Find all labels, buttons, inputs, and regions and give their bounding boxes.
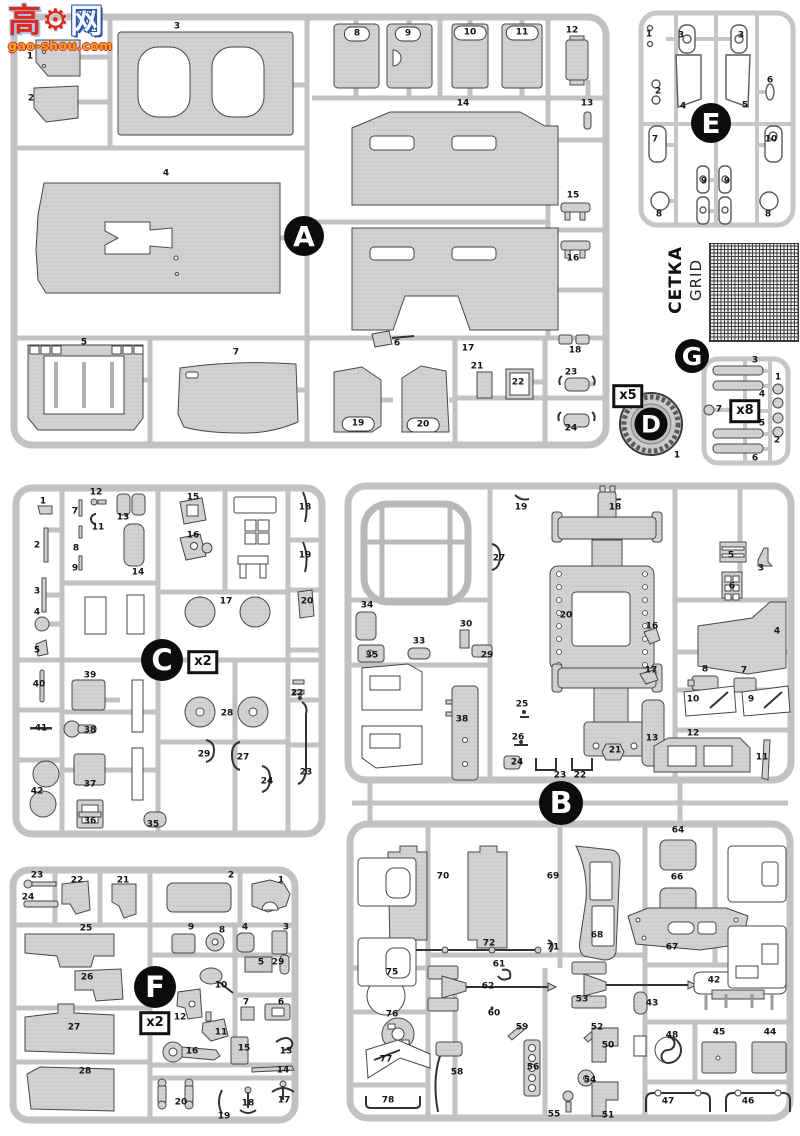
part-label-G-2: 2 bbox=[774, 437, 780, 446]
part-label-C-12: 12 bbox=[90, 489, 103, 498]
part-label-B-54: 54 bbox=[584, 1077, 597, 1086]
sprue-b-bottom-graphic bbox=[350, 824, 790, 1118]
part-label-F-2: 2 bbox=[228, 872, 234, 881]
part-label-B-44: 44 bbox=[764, 1029, 777, 1038]
part-label-B-72: 72 bbox=[483, 940, 496, 949]
part-label-A-6: 6 bbox=[394, 340, 400, 349]
part-label-G-7: 7 bbox=[716, 406, 722, 415]
part-label-B-55: 55 bbox=[548, 1111, 561, 1120]
part-label-F-21: 21 bbox=[117, 877, 130, 886]
part-label-G-3: 3 bbox=[752, 357, 758, 366]
part-label-B-62: 62 bbox=[482, 983, 495, 992]
sprue-f-multiplier: x2 bbox=[139, 1011, 170, 1035]
part-label-F-15: 15 bbox=[238, 1045, 251, 1054]
part-label-B-35: 35 bbox=[366, 652, 379, 661]
part-label-F-20: 20 bbox=[175, 1099, 188, 1108]
part-label-B-27: 27 bbox=[493, 555, 506, 564]
part-label-E-3: 3 bbox=[678, 32, 684, 41]
part-label-A-12: 12 bbox=[566, 27, 579, 36]
part-label-C-35: 35 bbox=[147, 821, 160, 830]
part-label-F-23: 23 bbox=[31, 872, 44, 881]
part-label-B-52: 52 bbox=[591, 1024, 604, 1033]
part-label-F-17: 17 bbox=[278, 1097, 291, 1106]
part-label-C-15: 15 bbox=[187, 494, 200, 503]
part-label-C-40: 40 bbox=[33, 681, 46, 690]
part-label-F-25: 25 bbox=[80, 925, 93, 934]
part-label-A-2: 2 bbox=[28, 95, 34, 104]
part-label-G-4: 4 bbox=[759, 391, 765, 400]
part-label-F-28: 28 bbox=[79, 1068, 92, 1077]
part-label-C-16: 16 bbox=[187, 532, 200, 541]
part-label-C-13: 13 bbox=[117, 514, 130, 523]
part-label-A-23: 23 bbox=[565, 369, 578, 378]
part-label-F-6: 6 bbox=[278, 999, 284, 1008]
part-label-A-11: 11 bbox=[506, 26, 539, 41]
sprue-c-badge: C bbox=[141, 639, 183, 681]
sprue-a-badge: A bbox=[284, 216, 324, 256]
part-label-E-6: 6 bbox=[767, 77, 773, 86]
part-label-E-8: 8 bbox=[765, 211, 771, 220]
part-label-C-39: 39 bbox=[84, 672, 97, 681]
part-label-F-24: 24 bbox=[22, 894, 35, 903]
sprue-f-badge: F bbox=[134, 966, 176, 1008]
part-label-B-56: 56 bbox=[527, 1064, 540, 1073]
part-label-F-3: 3 bbox=[283, 924, 289, 933]
part-label-B-34: 34 bbox=[361, 602, 374, 611]
part-label-C-11: 11 bbox=[92, 524, 105, 533]
part-label-B-48: 48 bbox=[666, 1032, 679, 1041]
part-label-C-42: 42 bbox=[31, 788, 44, 797]
part-label-F-18: 18 bbox=[242, 1100, 255, 1109]
logo-char-right: 网 bbox=[70, 4, 103, 37]
part-label-C-19: 19 bbox=[299, 552, 312, 561]
part-label-F-19: 19 bbox=[218, 1113, 231, 1122]
part-label-F-27: 27 bbox=[68, 1024, 81, 1033]
part-label-C-41: 41 bbox=[35, 725, 48, 734]
part-label-A-15: 15 bbox=[567, 192, 580, 201]
part-label-B-60: 60 bbox=[488, 1010, 501, 1019]
part-label-A-1: 1 bbox=[27, 53, 33, 62]
part-label-B-5: 5 bbox=[728, 552, 734, 561]
part-label-B-12: 12 bbox=[687, 730, 700, 739]
part-label-C-23: 23 bbox=[300, 769, 313, 778]
part-label-A-5: 5 bbox=[81, 339, 87, 348]
part-label-C-1: 1 bbox=[40, 498, 46, 507]
part-label-A-8: 8 bbox=[344, 27, 370, 42]
sprue-g-badge: G bbox=[675, 339, 709, 373]
part-label-C-29: 29 bbox=[198, 751, 211, 760]
part-label-B-43: 43 bbox=[646, 1000, 659, 1009]
part-label-B-51: 51 bbox=[602, 1112, 615, 1121]
part-label-B-13: 13 bbox=[646, 735, 659, 744]
part-label-A-10: 10 bbox=[454, 26, 487, 41]
part-label-B-69: 69 bbox=[547, 873, 560, 882]
part-label-A-24: 24 bbox=[565, 425, 578, 434]
part-label-B-67: 67 bbox=[666, 944, 679, 953]
part-label-G-5: 5 bbox=[759, 420, 765, 429]
part-label-B-4: 4 bbox=[774, 628, 780, 637]
part-label-B-33: 33 bbox=[413, 638, 426, 647]
part-label-C-36: 36 bbox=[84, 818, 97, 827]
part-label-C-8: 8 bbox=[73, 545, 79, 554]
part-label-B-9: 9 bbox=[748, 696, 754, 705]
part-label-C-3: 3 bbox=[34, 588, 40, 597]
instruction-sheet-page: СЕТКА GRID A B C D E F G x5 x8 x2 x2 高 ⚙… bbox=[0, 0, 800, 1136]
part-label-C-17: 17 bbox=[220, 598, 233, 607]
part-label-B-25: 25 bbox=[516, 701, 529, 710]
part-label-F-29: 29 bbox=[272, 959, 285, 968]
part-label-C-20: 20 bbox=[301, 598, 314, 607]
part-label-B-46: 46 bbox=[742, 1098, 755, 1107]
watermark-logo: 高 ⚙ 网 gao-shou.com bbox=[8, 4, 118, 53]
part-label-F-9: 9 bbox=[188, 924, 194, 933]
sprue-d-multiplier: x5 bbox=[612, 384, 643, 408]
part-label-A-9: 9 bbox=[395, 27, 421, 42]
part-label-B-24: 24 bbox=[511, 759, 524, 768]
sprue-diagram bbox=[0, 0, 800, 1136]
sprue-b-badge: B bbox=[539, 781, 583, 825]
part-label-F-13: 13 bbox=[280, 1048, 293, 1057]
mesh-grid-part bbox=[709, 243, 799, 342]
part-label-F-16: 16 bbox=[186, 1048, 199, 1057]
watermark-url: gao-shou.com bbox=[8, 38, 118, 53]
part-label-G-1: 1 bbox=[775, 374, 781, 383]
part-label-B-58: 58 bbox=[451, 1069, 464, 1078]
part-label-A-17: 17 bbox=[462, 345, 475, 354]
part-label-B-42: 42 bbox=[708, 977, 721, 986]
part-label-F-14: 14 bbox=[277, 1067, 290, 1076]
part-label-B-30: 30 bbox=[460, 621, 473, 630]
sprue-c-multiplier: x2 bbox=[187, 650, 218, 674]
part-label-C-7: 7 bbox=[72, 508, 78, 517]
part-label-B-23: 23 bbox=[554, 772, 567, 781]
part-label-C-2: 2 bbox=[34, 542, 40, 551]
part-label-B-76: 76 bbox=[386, 1011, 399, 1020]
part-label-C-22: 22 bbox=[291, 690, 304, 699]
part-label-A-21: 21 bbox=[471, 363, 484, 372]
part-label-B-20: 20 bbox=[560, 612, 573, 621]
part-label-B-7: 7 bbox=[741, 667, 747, 676]
sprue-d-badge: D bbox=[635, 408, 668, 441]
logo-char-left: 高 bbox=[8, 4, 41, 37]
part-label-C-27: 27 bbox=[237, 754, 250, 763]
part-label-A-7: 7 bbox=[233, 349, 239, 358]
part-label-F-1: 1 bbox=[278, 877, 284, 886]
part-label-B-21: 21 bbox=[609, 747, 622, 756]
part-label-B-16: 16 bbox=[646, 623, 659, 632]
part-label-F-26: 26 bbox=[81, 974, 94, 983]
part-label-B-75: 75 bbox=[386, 969, 399, 978]
part-label-C-9: 9 bbox=[72, 565, 78, 574]
part-label-A-20: 20 bbox=[407, 418, 440, 433]
part-label-E-7: 7 bbox=[652, 136, 658, 145]
sprue-g-multiplier: x8 bbox=[729, 399, 760, 423]
part-label-C-38: 38 bbox=[84, 727, 97, 736]
grid-label-english: GRID bbox=[687, 259, 705, 301]
part-label-B-66: 66 bbox=[671, 874, 684, 883]
part-label-A-4: 4 bbox=[163, 170, 169, 179]
part-label-C-5: 5 bbox=[34, 647, 40, 656]
part-label-F-4: 4 bbox=[242, 924, 248, 933]
part-label-F-11: 11 bbox=[215, 1029, 228, 1038]
part-label-B-18: 18 bbox=[609, 504, 622, 513]
grid-label-cyrillic: СЕТКА bbox=[666, 246, 686, 314]
part-label-A-22: 22 bbox=[512, 379, 525, 388]
part-label-B-59: 59 bbox=[516, 1024, 529, 1033]
part-label-C-4: 4 bbox=[34, 609, 40, 618]
part-label-F-8: 8 bbox=[219, 927, 225, 936]
part-label-E-5: 5 bbox=[742, 102, 748, 111]
part-label-E-4: 4 bbox=[680, 103, 686, 112]
part-label-A-19: 19 bbox=[342, 417, 375, 432]
part-label-C-18: 18 bbox=[299, 504, 312, 513]
part-label-B-70: 70 bbox=[437, 873, 450, 882]
part-label-B-61: 61 bbox=[493, 961, 506, 970]
part-label-B-53: 53 bbox=[576, 996, 589, 1005]
part-label-E-1: 1 bbox=[646, 31, 652, 40]
part-label-B-10: 10 bbox=[687, 696, 700, 705]
part-label-F-5: 5 bbox=[258, 959, 264, 968]
part-label-B-68: 68 bbox=[591, 932, 604, 941]
part-label-E-8: 8 bbox=[656, 211, 662, 220]
part-label-B-19: 19 bbox=[515, 504, 528, 513]
part-label-F-10: 10 bbox=[215, 982, 228, 991]
part-label-E-9: 9 bbox=[701, 178, 707, 187]
part-label-B-64: 64 bbox=[672, 827, 685, 836]
part-label-G-6: 6 bbox=[752, 455, 758, 464]
sprue-e-badge: E bbox=[691, 103, 731, 143]
part-label-F-22: 22 bbox=[71, 877, 84, 886]
sprue-b-top-graphic bbox=[348, 486, 791, 826]
part-label-C-14: 14 bbox=[132, 569, 145, 578]
part-label-C-37: 37 bbox=[84, 781, 97, 790]
part-label-E-10: 10 bbox=[765, 136, 778, 145]
part-label-A-3: 3 bbox=[174, 23, 180, 32]
part-label-B-38: 38 bbox=[456, 716, 469, 725]
part-label-A-18: 18 bbox=[569, 347, 582, 356]
part-label-B-8: 8 bbox=[702, 666, 708, 675]
part-label-B-6: 6 bbox=[729, 583, 735, 592]
part-label-E-3: 3 bbox=[738, 32, 744, 41]
part-label-F-12: 12 bbox=[174, 1014, 187, 1023]
part-label-B-29: 29 bbox=[481, 652, 494, 661]
part-label-C-28: 28 bbox=[221, 710, 234, 719]
part-label-D-1: 1 bbox=[674, 452, 680, 461]
part-label-B-22: 22 bbox=[574, 772, 587, 781]
part-label-B-3: 3 bbox=[758, 565, 764, 574]
part-label-B-45: 45 bbox=[713, 1029, 726, 1038]
part-label-A-14: 14 bbox=[457, 100, 470, 109]
part-label-B-47: 47 bbox=[662, 1098, 675, 1107]
part-label-E-9: 9 bbox=[724, 178, 730, 187]
part-label-B-50: 50 bbox=[602, 1042, 615, 1051]
part-label-B-17: 17 bbox=[645, 667, 658, 676]
part-label-E-2: 2 bbox=[655, 88, 661, 97]
part-label-B-77: 77 bbox=[380, 1056, 393, 1065]
part-label-B-71: 71 bbox=[547, 944, 560, 953]
part-label-C-24: 24 bbox=[261, 778, 274, 787]
gear-logo-icon: ⚙ bbox=[42, 6, 69, 36]
part-label-F-7: 7 bbox=[243, 999, 249, 1008]
part-label-B-78: 78 bbox=[382, 1097, 395, 1106]
part-label-B-11: 11 bbox=[756, 754, 769, 763]
part-label-A-16: 16 bbox=[567, 255, 580, 264]
part-label-B-26: 26 bbox=[512, 734, 525, 743]
part-label-A-13: 13 bbox=[581, 100, 594, 109]
